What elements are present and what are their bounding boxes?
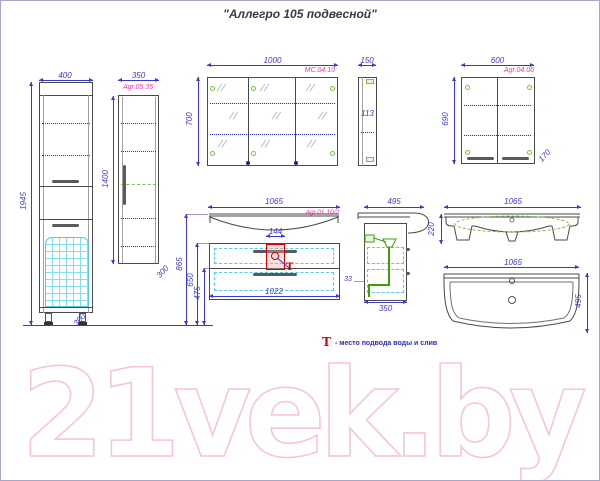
technical-drawing-sheet: "Аллегро 105 подвесной" 400 Agr.05.04 19… [0, 0, 600, 481]
watermark: 21vek.by [21, 352, 585, 476]
